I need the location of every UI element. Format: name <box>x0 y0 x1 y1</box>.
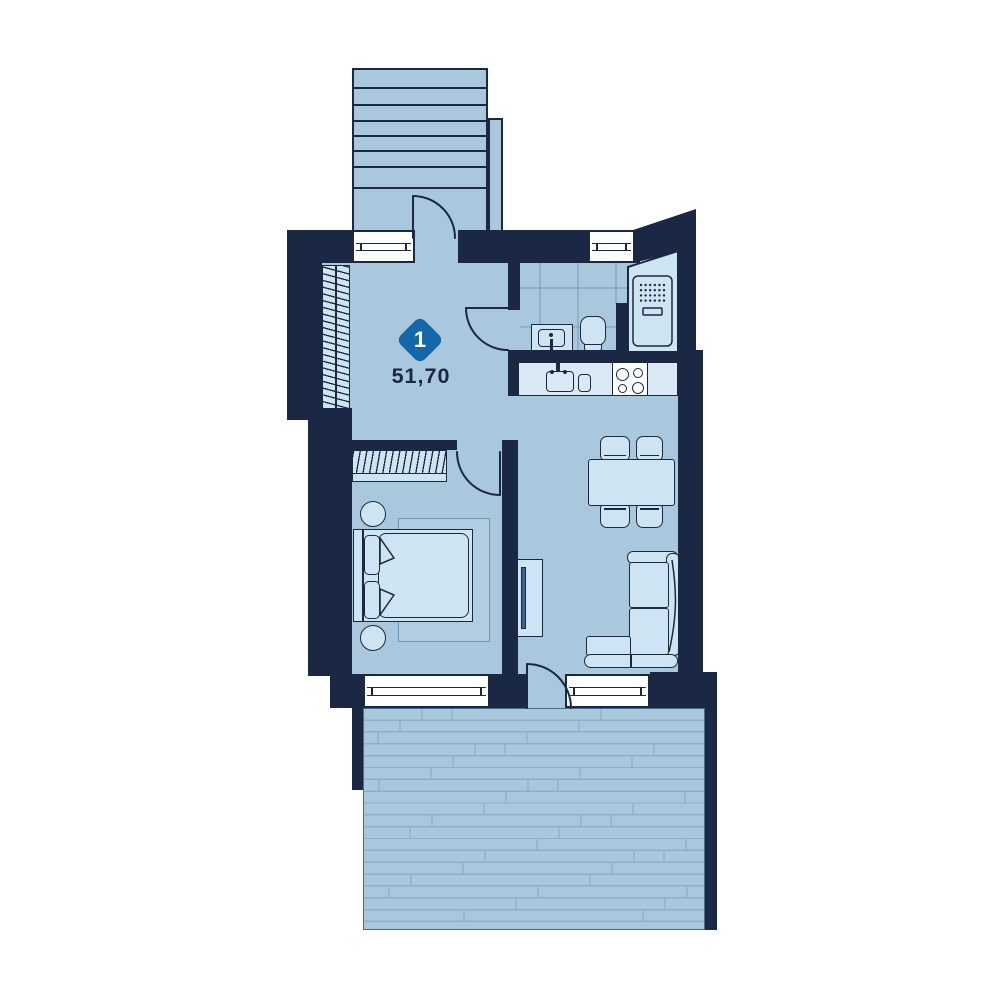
washbasin-drain <box>549 333 553 337</box>
floor-plan: 1 51,70 <box>0 0 1000 1000</box>
terrace-deck <box>363 708 705 930</box>
wall <box>458 230 588 263</box>
wall <box>287 230 322 420</box>
dining-table <box>588 459 675 506</box>
terrace-door-opening <box>527 674 565 708</box>
bedroom-wardrobe <box>352 450 447 482</box>
stair-tread <box>354 150 486 152</box>
stair-tread <box>354 87 486 89</box>
sofa-cushion <box>629 562 669 608</box>
mattress-inner-line <box>378 533 469 618</box>
wall <box>508 350 518 396</box>
stair-tread <box>354 120 486 122</box>
nightstand <box>360 501 386 527</box>
burner <box>632 382 644 394</box>
window <box>352 230 415 263</box>
wall <box>616 303 628 352</box>
wall <box>508 350 680 362</box>
pillow <box>364 581 380 619</box>
stair-tread <box>354 104 486 106</box>
staircase-side-strip <box>488 118 503 233</box>
area-label: 51,70 <box>381 364 461 389</box>
wall <box>330 674 363 708</box>
wall <box>678 350 703 676</box>
hall-wardrobe-divider <box>335 265 337 410</box>
burner <box>616 368 629 381</box>
wall <box>352 708 363 790</box>
kitchen-sink-small-bowl <box>578 374 591 392</box>
stair-tread <box>354 187 486 189</box>
sofa-chaise <box>586 636 631 656</box>
faucet-handle <box>563 370 567 374</box>
wall <box>352 440 457 450</box>
faucet <box>556 361 560 372</box>
sofa-cushion <box>629 608 669 655</box>
kitchen-counter <box>518 362 678 396</box>
wall <box>308 418 352 676</box>
window <box>565 674 650 708</box>
faucet-handle <box>550 370 554 374</box>
unit-marker: 1 <box>396 316 444 364</box>
wall <box>490 674 527 708</box>
stair-tread <box>354 166 486 168</box>
bedroom-door-opening <box>457 440 502 452</box>
entrance-opening <box>415 230 458 263</box>
sofa-seat-divider <box>630 655 632 667</box>
nightstand <box>360 625 386 651</box>
burner <box>633 368 643 378</box>
kitchen-sink <box>546 371 574 392</box>
unit-number: 1 <box>403 323 437 357</box>
wall <box>705 708 717 930</box>
toilet <box>580 316 606 346</box>
tv-screen <box>521 567 526 629</box>
wardrobe-hanger-hatch <box>353 451 446 474</box>
window <box>363 674 490 708</box>
wall <box>502 440 518 676</box>
staircase <box>352 68 488 233</box>
stair-tread <box>354 135 486 137</box>
window <box>588 230 635 263</box>
wall <box>650 672 717 708</box>
pillow <box>364 535 380 575</box>
wall <box>508 263 520 310</box>
burner <box>618 384 627 393</box>
